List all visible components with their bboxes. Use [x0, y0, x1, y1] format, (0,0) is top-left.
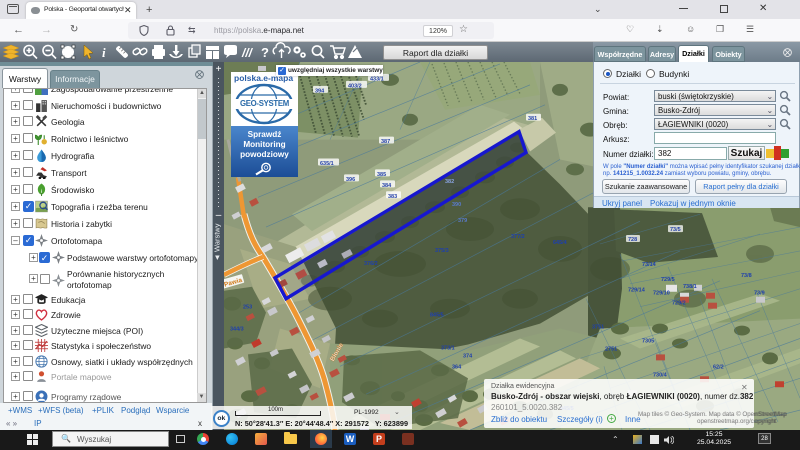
- svg-text:253: 253: [243, 305, 252, 311]
- svg-text:73/9: 73/9: [754, 291, 765, 297]
- svg-text:383: 383: [388, 194, 397, 200]
- svg-text:3751: 3751: [592, 325, 604, 331]
- svg-text:729/5: 729/5: [661, 277, 675, 283]
- svg-text:382: 382: [445, 179, 454, 185]
- svg-text:344/3: 344/3: [230, 327, 244, 333]
- svg-text:373/1: 373/1: [441, 345, 455, 351]
- svg-text:73/8: 73/8: [741, 273, 752, 279]
- svg-text:i: i: [102, 45, 106, 60]
- svg-text:396: 396: [346, 177, 355, 183]
- svg-text:375/3: 375/3: [435, 248, 449, 254]
- svg-text:73/14: 73/14: [642, 262, 657, 268]
- svg-text:730/4: 730/4: [653, 372, 668, 378]
- svg-text:387: 387: [381, 139, 390, 145]
- svg-text:729/14: 729/14: [628, 288, 646, 294]
- svg-text:376/2: 376/2: [364, 261, 378, 267]
- svg-text:394: 394: [315, 88, 325, 94]
- svg-text:384: 384: [382, 183, 392, 189]
- svg-text:728: 728: [628, 237, 637, 243]
- svg-text:403/2: 403/2: [348, 83, 362, 89]
- svg-text:385: 385: [377, 172, 386, 178]
- svg-text:635/1: 635/1: [320, 161, 334, 167]
- svg-text:381: 381: [528, 116, 537, 122]
- svg-text:738/1: 738/1: [683, 284, 697, 290]
- svg-text:///: ///: [241, 46, 254, 60]
- svg-text:845/5: 845/5: [430, 313, 444, 319]
- svg-text:?: ?: [261, 45, 269, 60]
- svg-text:73/5: 73/5: [670, 227, 681, 233]
- svg-text:729/2: 729/2: [672, 301, 686, 307]
- svg-text:377/2: 377/2: [511, 234, 525, 240]
- svg-text:390: 390: [452, 202, 461, 208]
- svg-text:62/2: 62/2: [713, 364, 724, 370]
- svg-text:729/10: 729/10: [653, 291, 670, 297]
- svg-text:433/1: 433/1: [370, 76, 384, 82]
- svg-text:645/4: 645/4: [553, 240, 568, 246]
- svg-text:374: 374: [463, 353, 473, 359]
- svg-text:379: 379: [458, 218, 467, 224]
- svg-text:364: 364: [452, 364, 462, 370]
- svg-text:7305: 7305: [642, 338, 654, 344]
- svg-text:2751: 2751: [605, 346, 617, 352]
